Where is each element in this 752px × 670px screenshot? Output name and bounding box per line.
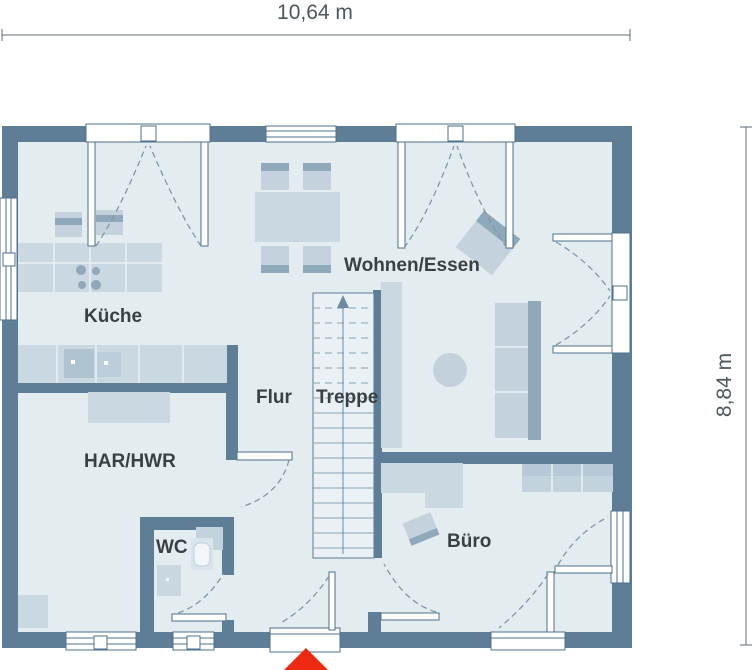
wc-sink-icon xyxy=(157,565,181,596)
staircase xyxy=(313,293,374,558)
floor-plan: 10,64 m 8,84 m Küche Wohnen/Essen Flur T… xyxy=(0,0,752,670)
floor-plan-drawing xyxy=(0,0,752,670)
sideboard xyxy=(381,282,402,448)
room-label-wc: WC xyxy=(156,538,188,557)
window-handle-icon xyxy=(94,636,107,649)
room-label-kueche: Küche xyxy=(84,307,142,326)
room-label-wohnen-essen: Wohnen/Essen xyxy=(344,256,480,275)
window-handle-icon xyxy=(3,253,15,266)
top-center-window xyxy=(266,126,336,142)
width-dimension-label: 10,64 m xyxy=(230,2,400,23)
sofa xyxy=(495,301,541,440)
door-handle-icon xyxy=(448,126,463,141)
round-rug xyxy=(433,353,467,387)
door-handle-icon xyxy=(613,286,627,300)
washer-block xyxy=(88,392,170,423)
wc-window xyxy=(173,632,214,650)
room-label-flur: Flur xyxy=(256,388,292,407)
room-label-har-hwr: HAR/HWR xyxy=(84,452,176,471)
dining-table xyxy=(255,192,340,242)
kitchen-sink-icon xyxy=(64,349,121,378)
door-handle-icon xyxy=(141,126,156,141)
left-wall-window xyxy=(0,198,17,320)
kitchen-counter-top xyxy=(18,243,162,292)
height-dimension-label: 8,84 m xyxy=(714,345,742,425)
utility-window xyxy=(66,632,136,650)
width-dimension-line xyxy=(2,29,630,41)
window-handle-icon xyxy=(187,636,200,649)
room-label-buero: Büro xyxy=(447,532,491,551)
kitchen-counter-bottom xyxy=(18,345,227,383)
utility-corner-block xyxy=(18,595,48,628)
office-shelf xyxy=(522,464,613,492)
room-label-treppe: Treppe xyxy=(316,388,378,407)
